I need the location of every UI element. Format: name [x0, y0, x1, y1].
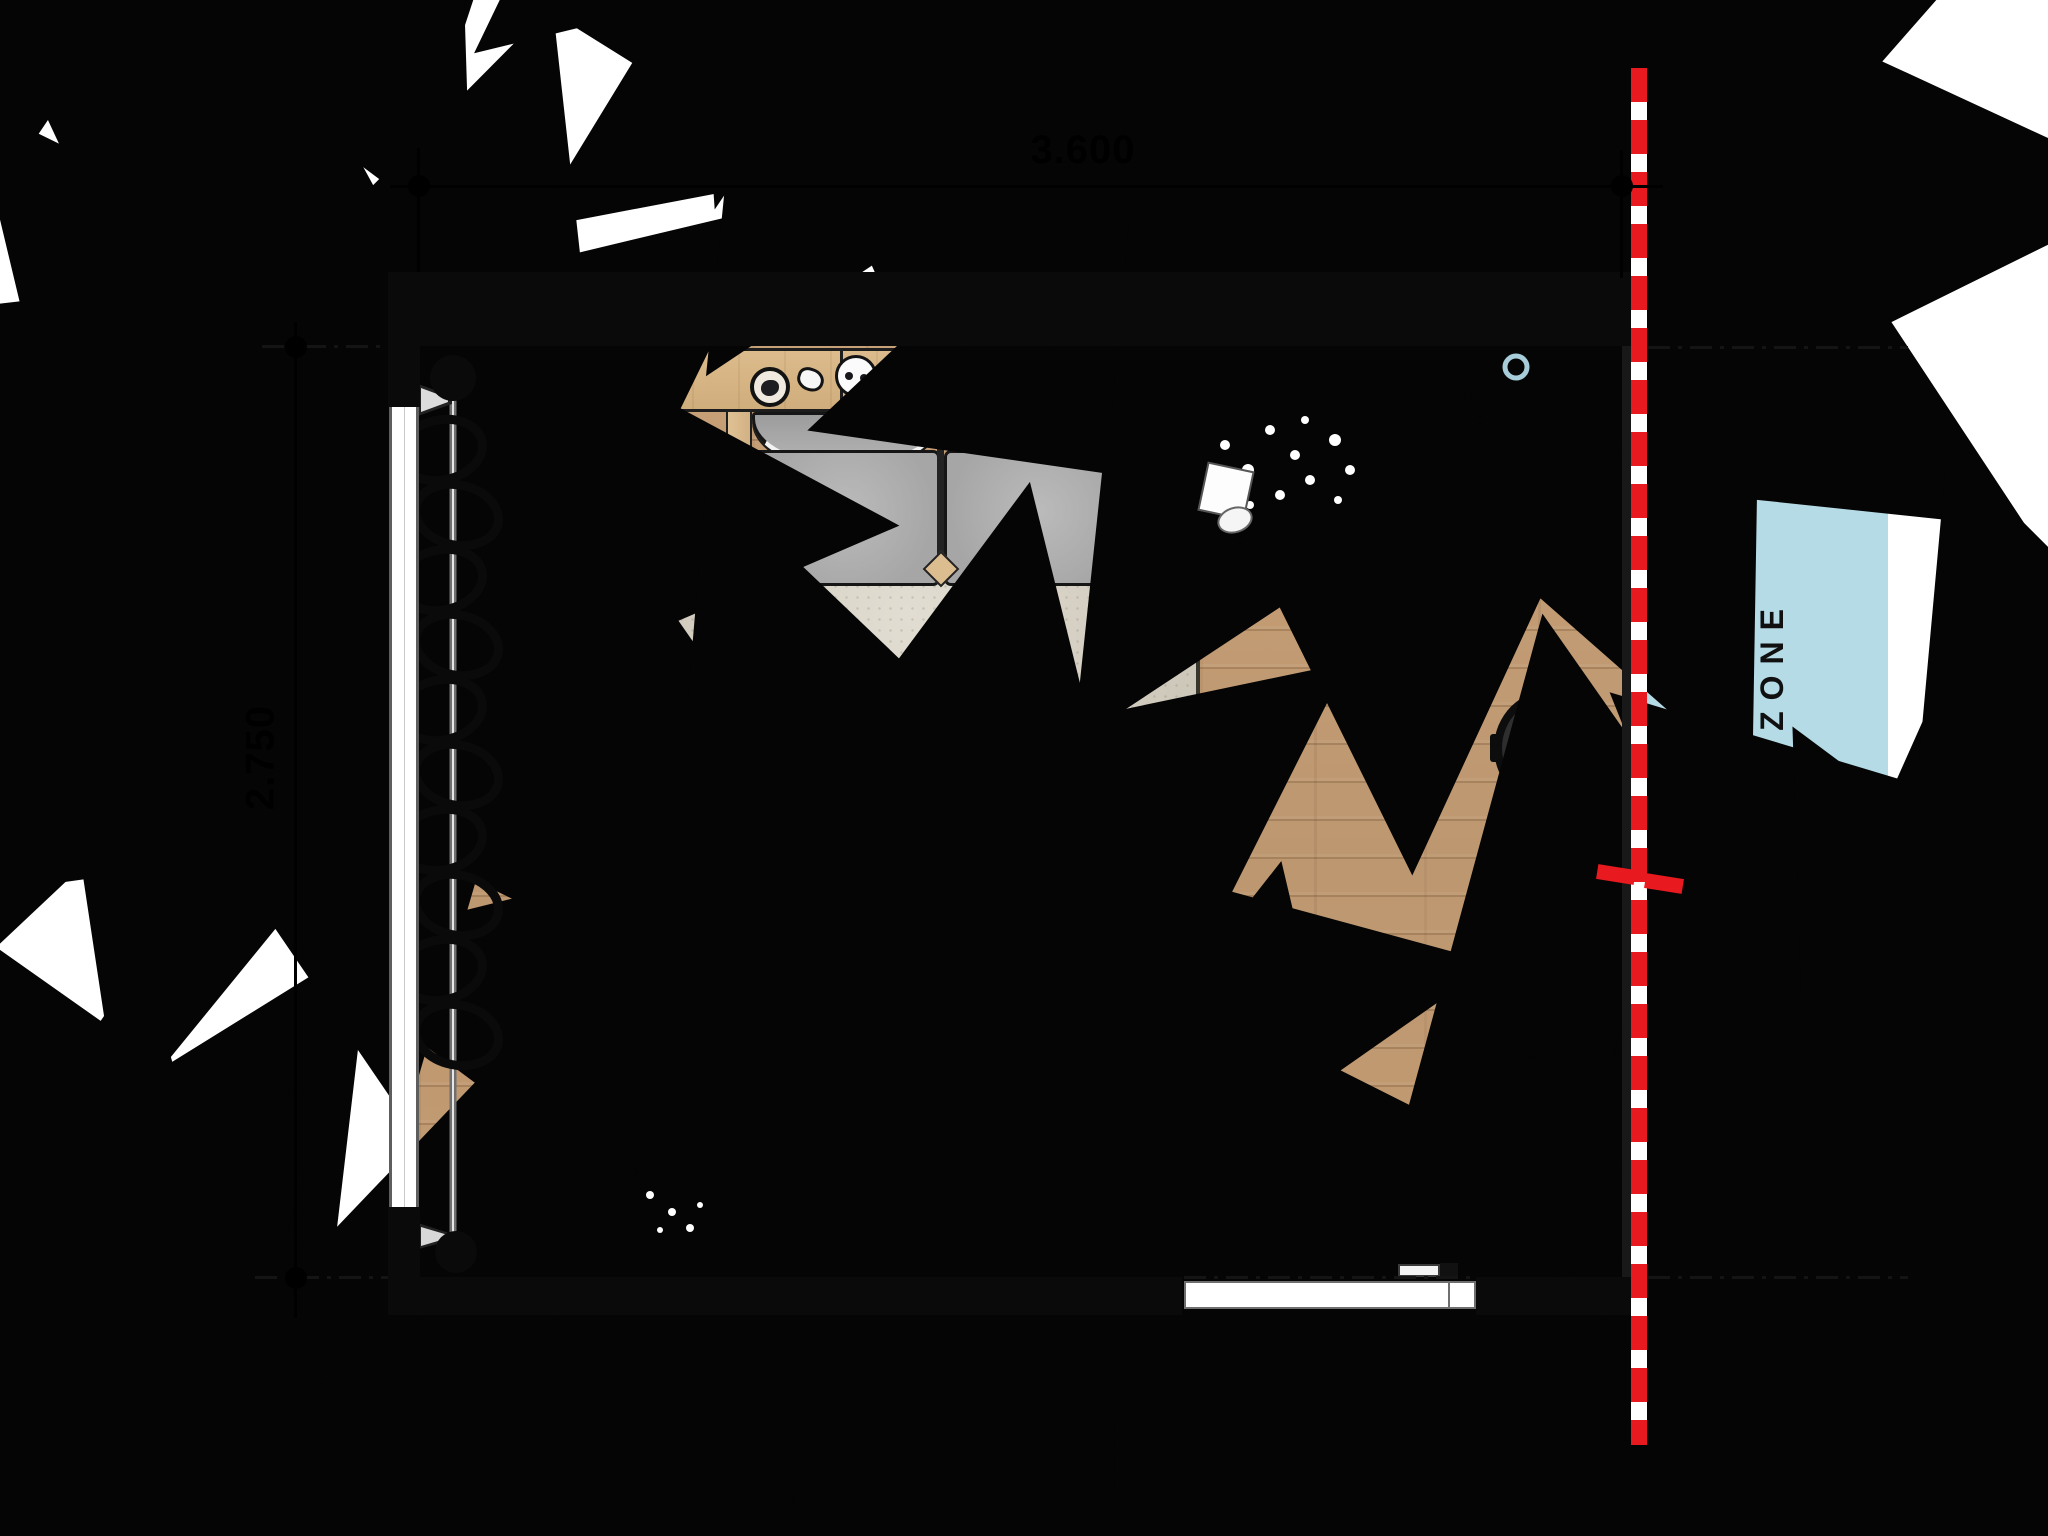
dimension-line-height [294, 322, 297, 1318]
dimension-marker [285, 1267, 307, 1289]
door-panel [1184, 1281, 1476, 1309]
dimension-extension [1620, 150, 1623, 278]
axis-line-bottom-left [255, 1276, 388, 1279]
axis-line-top-right [1648, 346, 1908, 349]
dimension-extension [417, 148, 420, 272]
dimension-marker [285, 336, 307, 358]
wall-bottom-right [1476, 1277, 1632, 1315]
axis-line-bottom-right [1648, 1276, 1908, 1279]
dimension-marker [408, 175, 430, 197]
curtain-finial [435, 1231, 477, 1273]
height-dimension-label: 2.750 [239, 658, 284, 858]
window [389, 407, 419, 1207]
wall-top [388, 272, 1632, 346]
kitchen-zone-divider-line [1631, 68, 1647, 1445]
threshold-block [1440, 1263, 1458, 1277]
wall-left-upper [388, 346, 420, 407]
axis-line-bottom-door [1184, 1276, 1473, 1279]
width-dimension-label: 3.600 [983, 128, 1183, 173]
axis-line-top-left [262, 345, 388, 348]
wall-bottom-left [388, 1277, 1182, 1315]
curtain-finial [430, 355, 476, 401]
dimension-marker [1611, 175, 1633, 197]
dimension-line-width [390, 185, 1663, 188]
floor-plan-canvas: Kitchen zone [0, 0, 2048, 1536]
